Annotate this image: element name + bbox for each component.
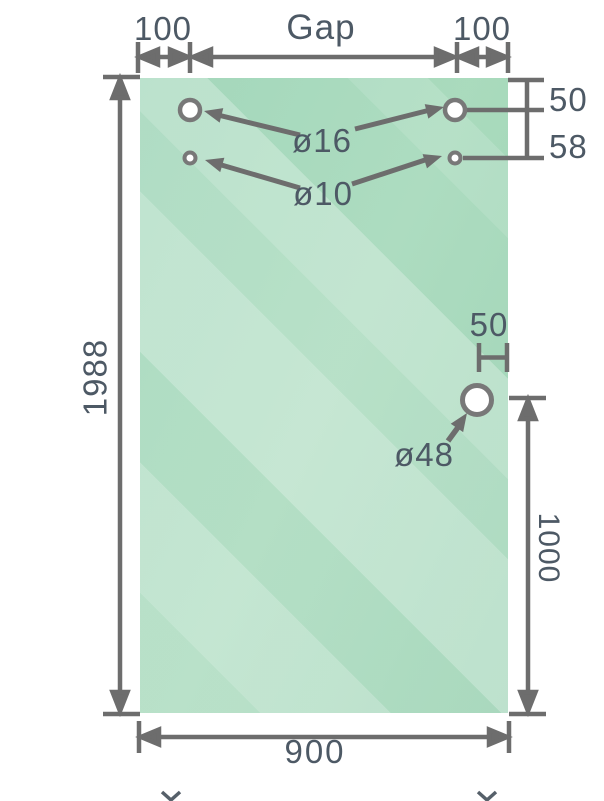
dim-label-100-left: 100 [131,12,195,45]
dim-label-50-mid: 50 [464,308,514,341]
dim-label-gap: Gap [281,10,361,45]
hole-d16-right [445,100,465,120]
hole-d16-left [180,100,200,120]
dim-label-900: 900 [265,735,365,768]
dim-label-50-top: 50 [549,83,601,116]
drawing-canvas: 100 Gap 100 50 58 ø16 ø10 1988 50 ø48 10… [0,0,604,801]
dim-label-1000: 1000 [533,487,563,609]
dim-label-1988: 1988 [79,316,112,440]
hole-label-d10: ø10 [283,177,363,210]
hole-d10-left [185,153,196,164]
dim-100-left-arrows [140,50,188,65]
hole-label-d16: ø16 [282,124,362,157]
dim-label-58: 58 [549,130,601,163]
dim-gap-arrows [193,50,454,65]
hole-label-d48: ø48 [384,438,464,471]
dim-50-mid-lines [479,343,507,372]
cropped-arrow-tips [162,792,496,800]
dim-label-100-right: 100 [450,12,514,45]
hole-d10-right [450,153,461,164]
dim-50-58-lines [463,80,544,158]
dim-100-right-arrows [459,50,506,65]
hole-d48-handle [463,386,492,415]
